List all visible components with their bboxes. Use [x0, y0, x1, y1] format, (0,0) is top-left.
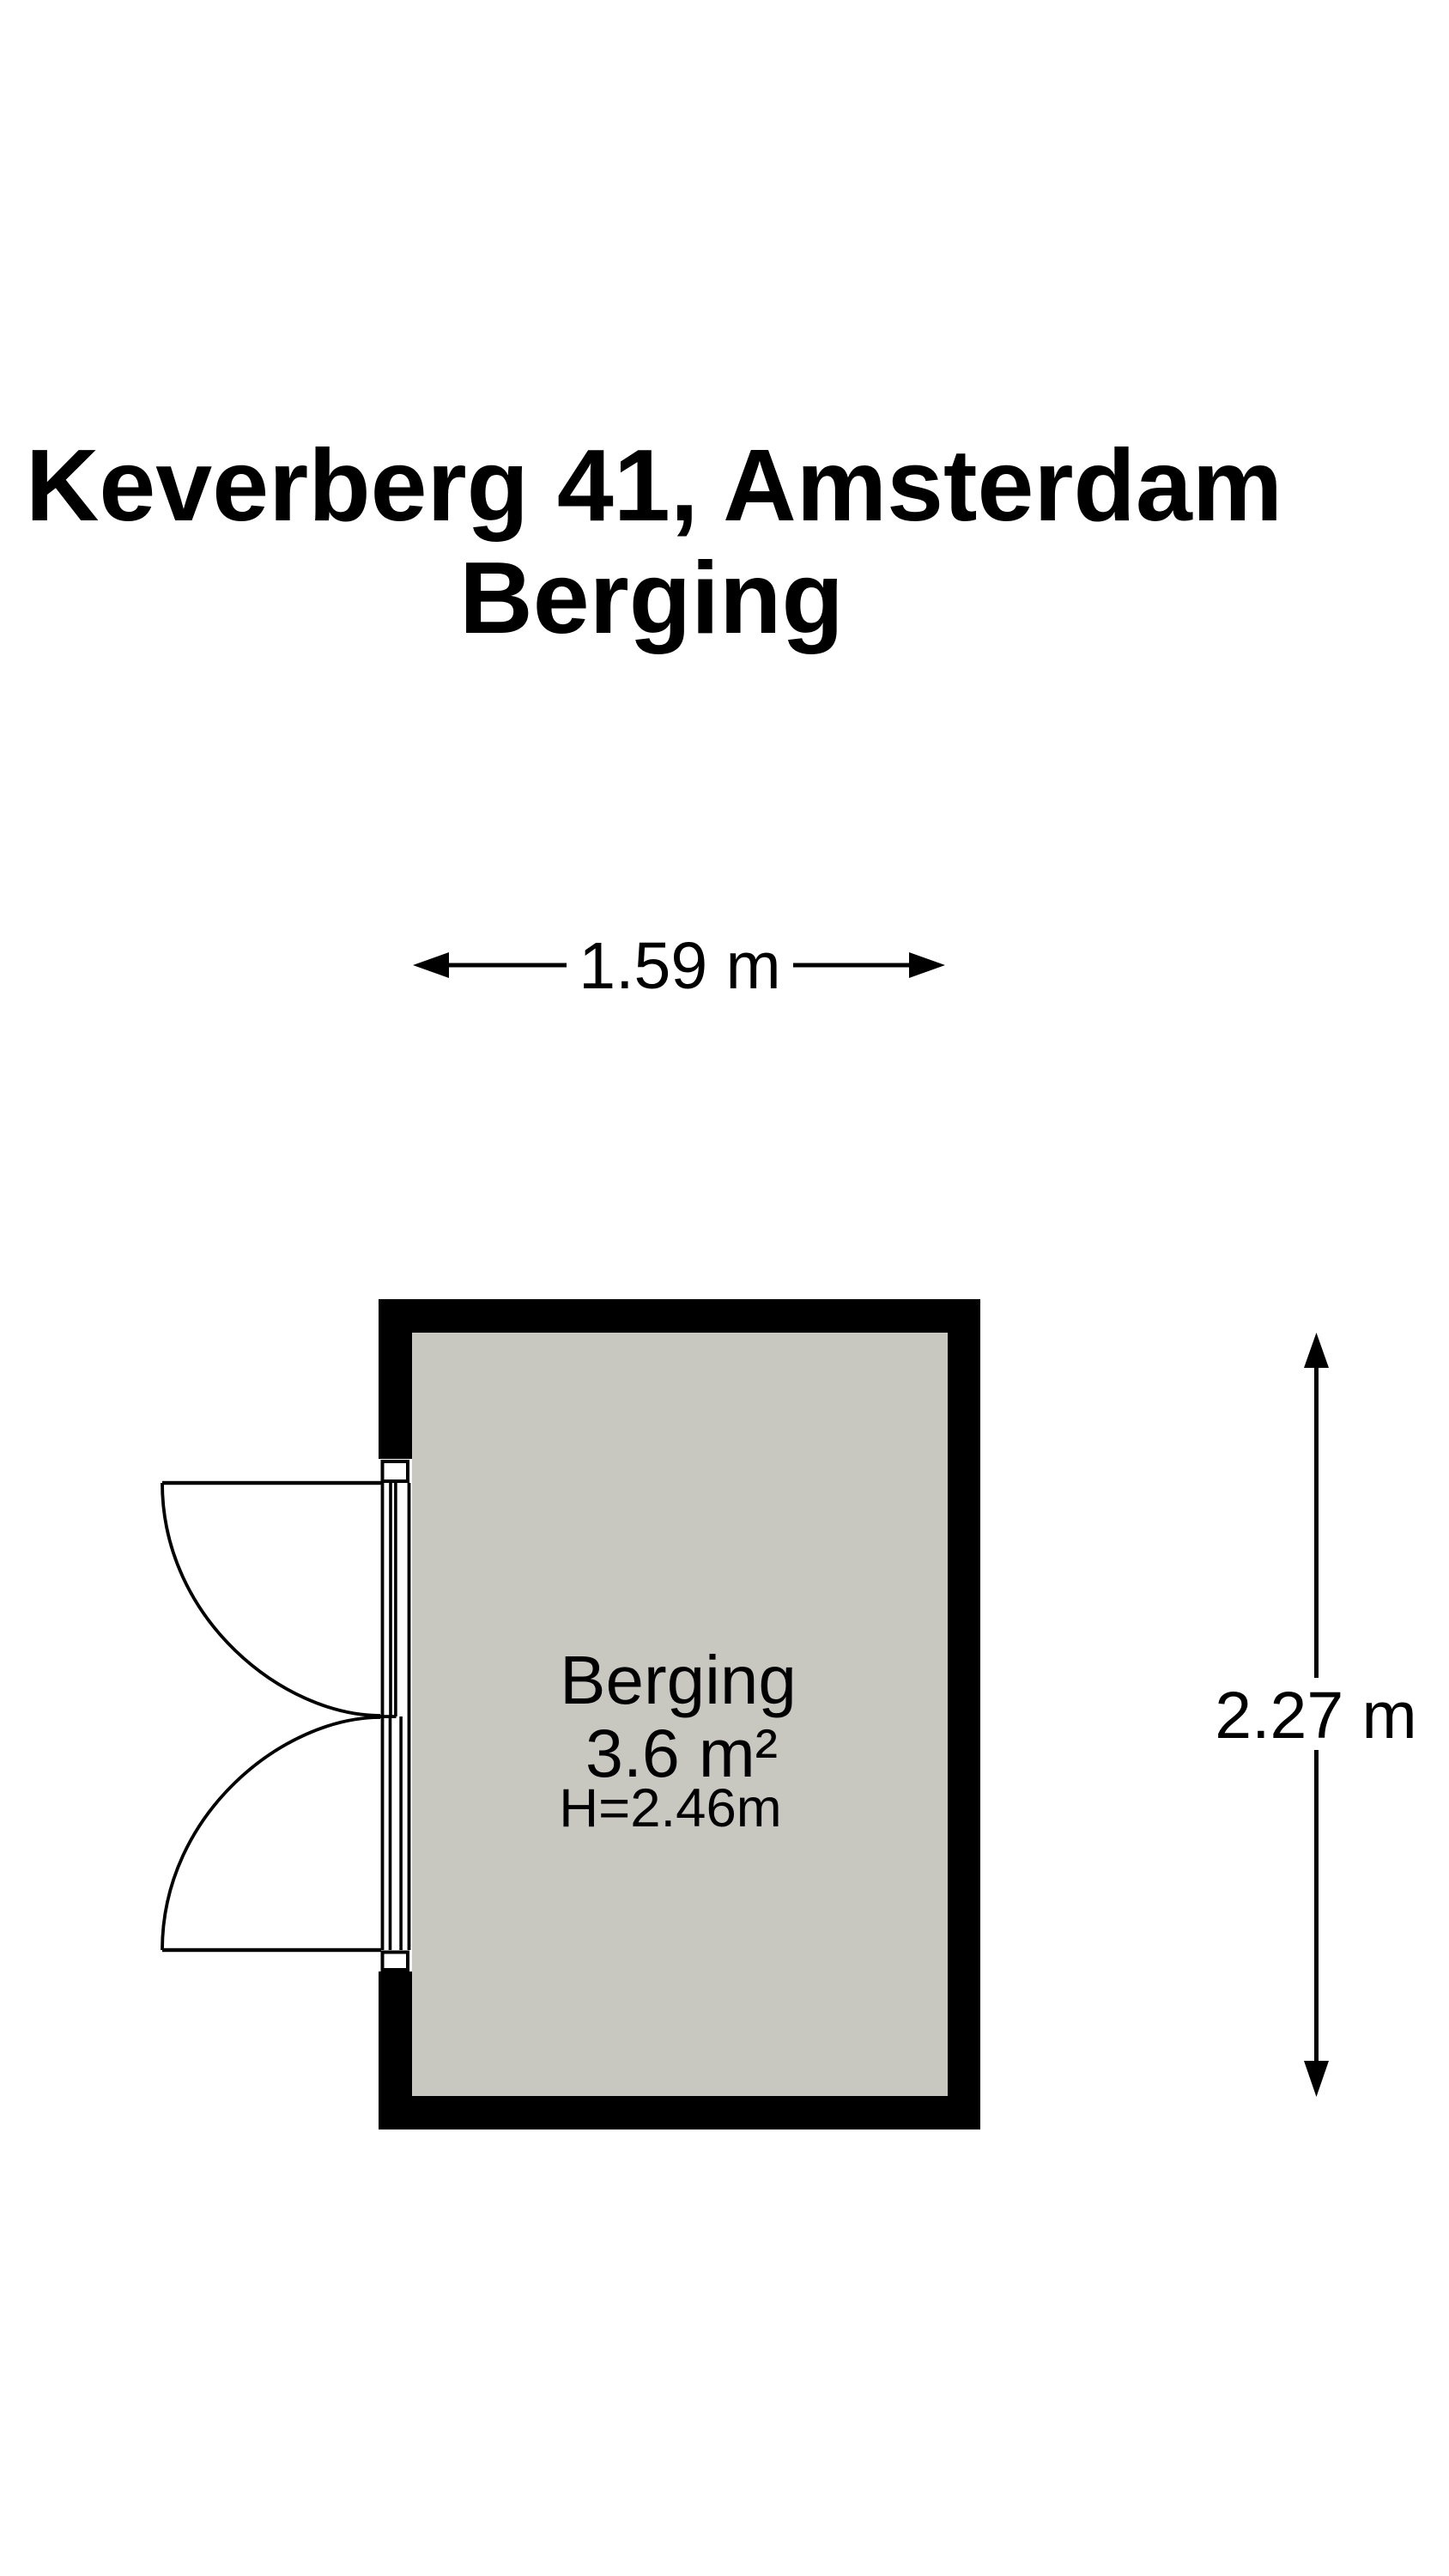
- svg-text:1.59 m: 1.59 m: [579, 929, 780, 1003]
- svg-text:Berging: Berging: [560, 1642, 797, 1718]
- svg-text:H=2.46m: H=2.46m: [559, 1778, 781, 1838]
- svg-text:Berging: Berging: [459, 542, 844, 655]
- svg-text:Keverberg 41, Amsterdam: Keverberg 41, Amsterdam: [26, 429, 1282, 543]
- svg-text:2.27 m: 2.27 m: [1215, 1679, 1416, 1753]
